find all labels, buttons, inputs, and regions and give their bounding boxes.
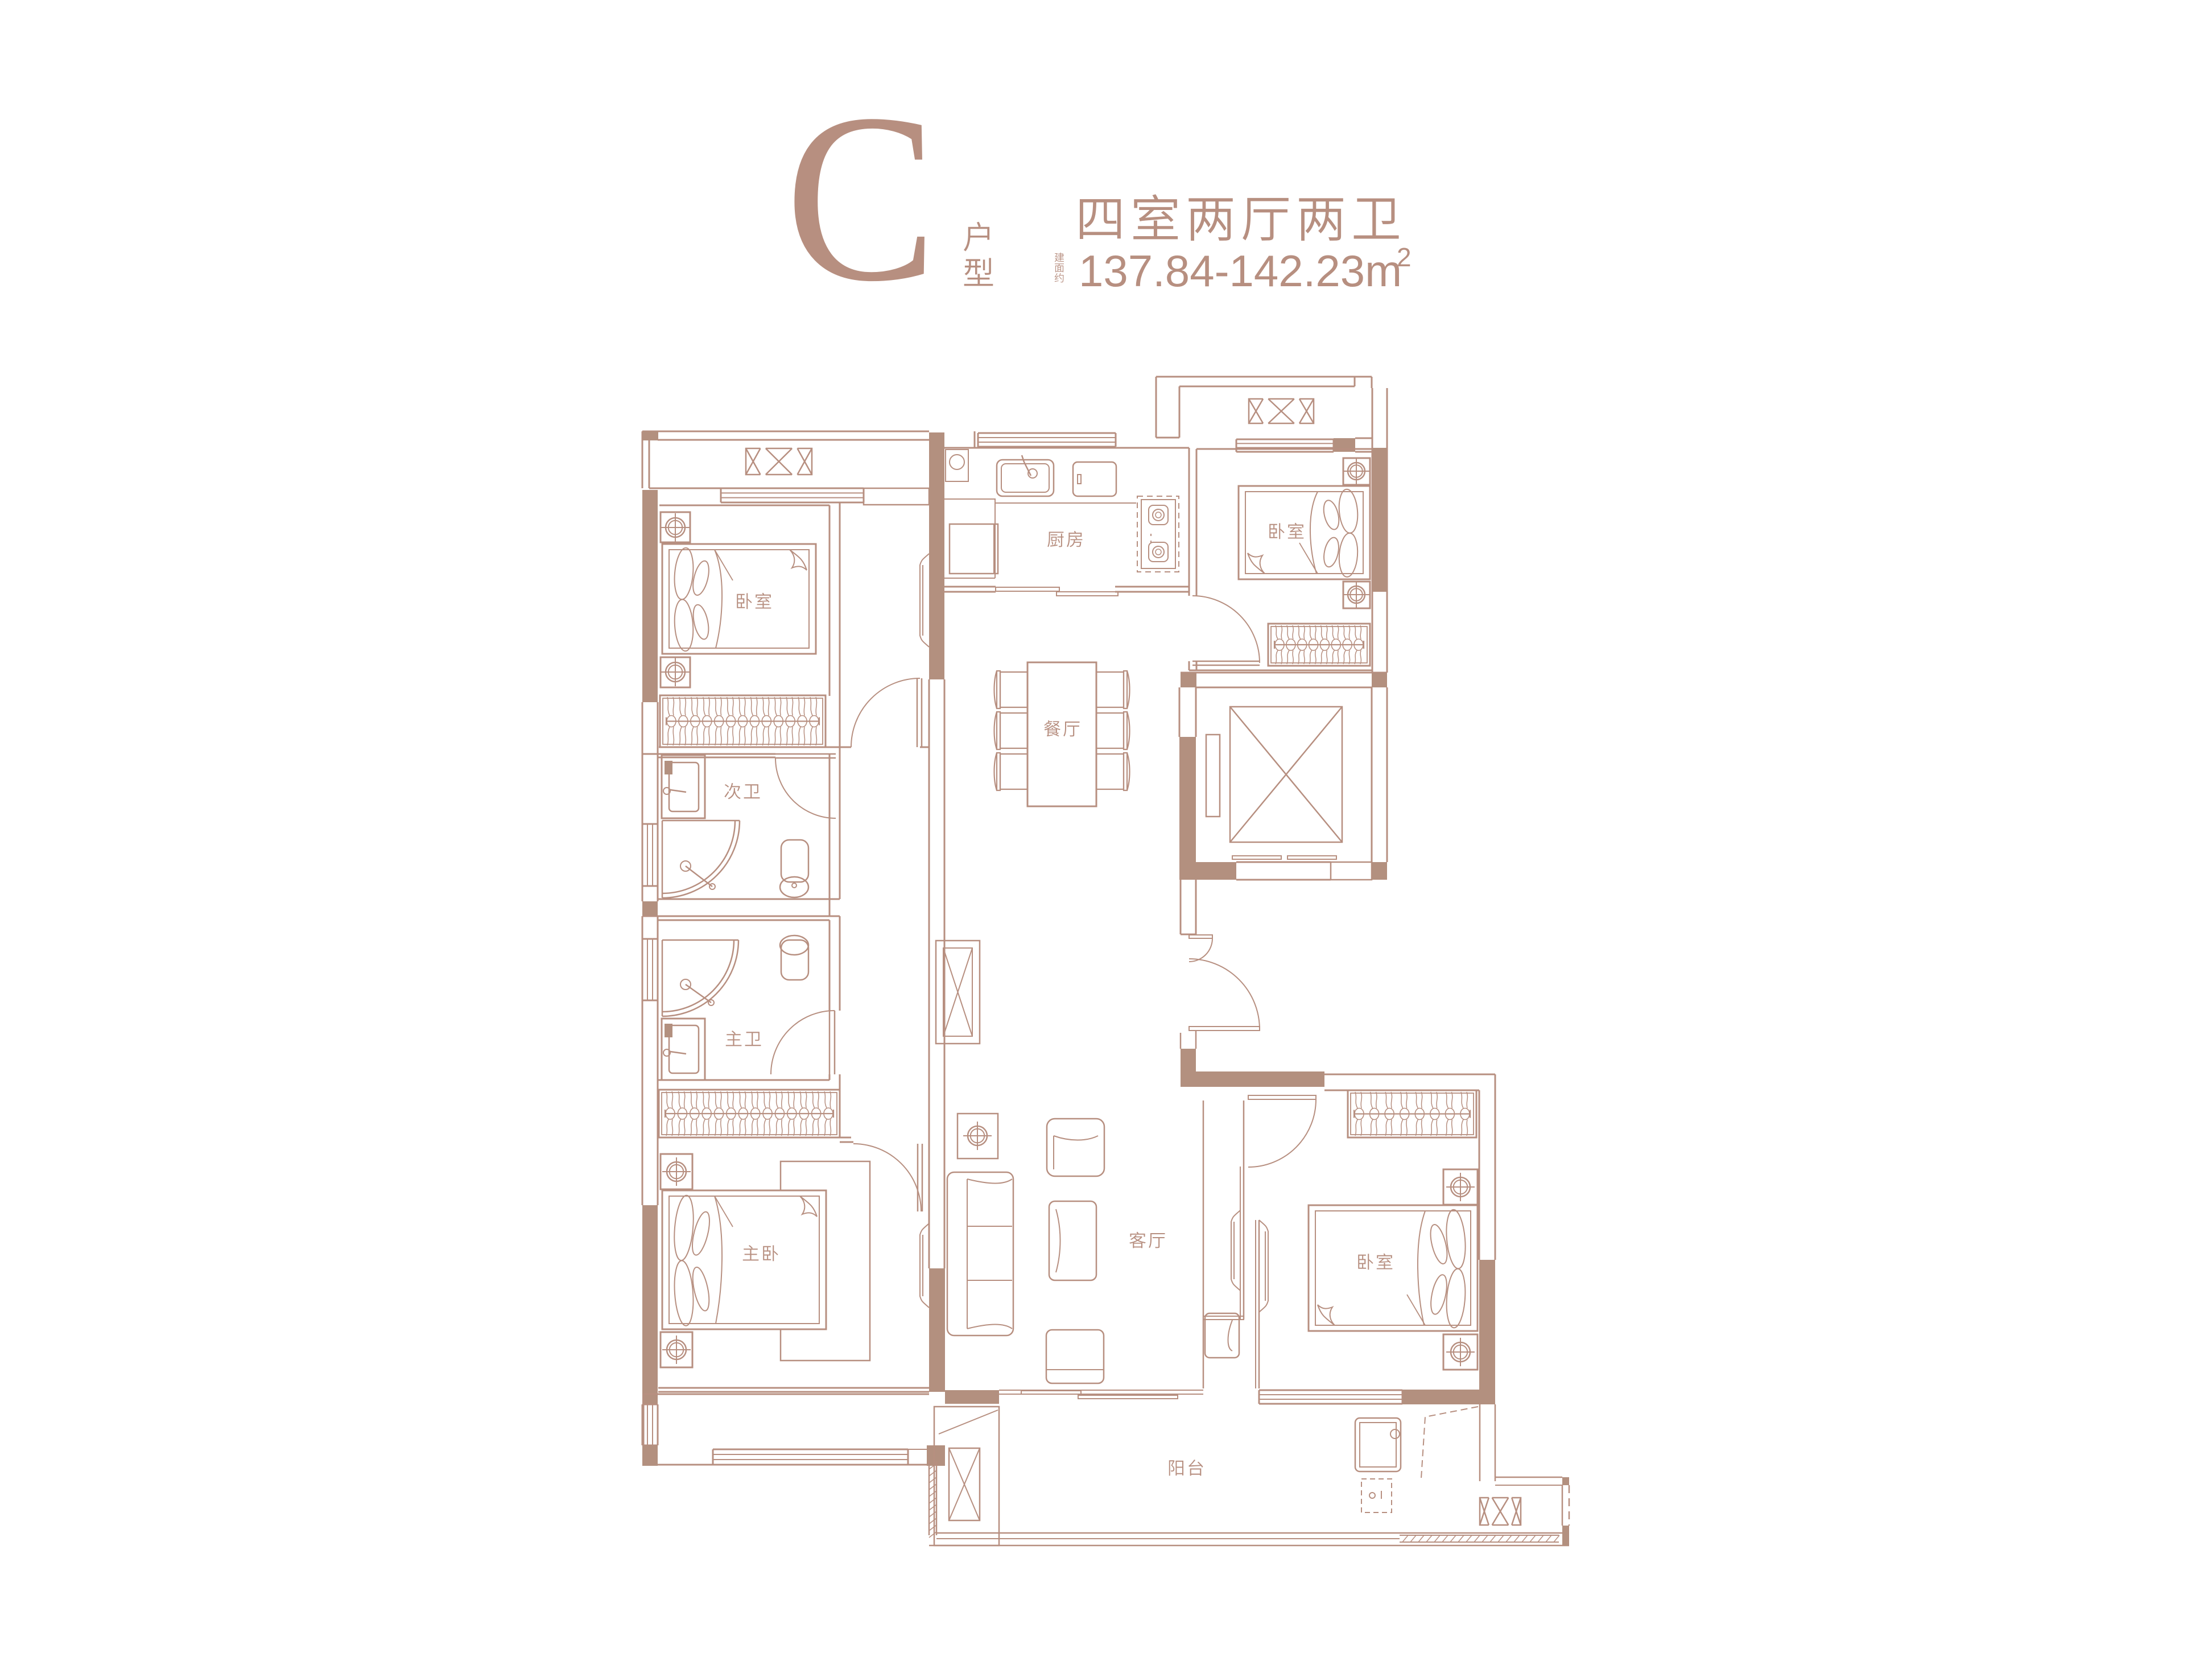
svg-text:137.84-142.23m: 137.84-142.23m (1079, 246, 1402, 296)
svg-text:C: C (785, 65, 937, 332)
svg-text:2: 2 (1397, 242, 1412, 272)
